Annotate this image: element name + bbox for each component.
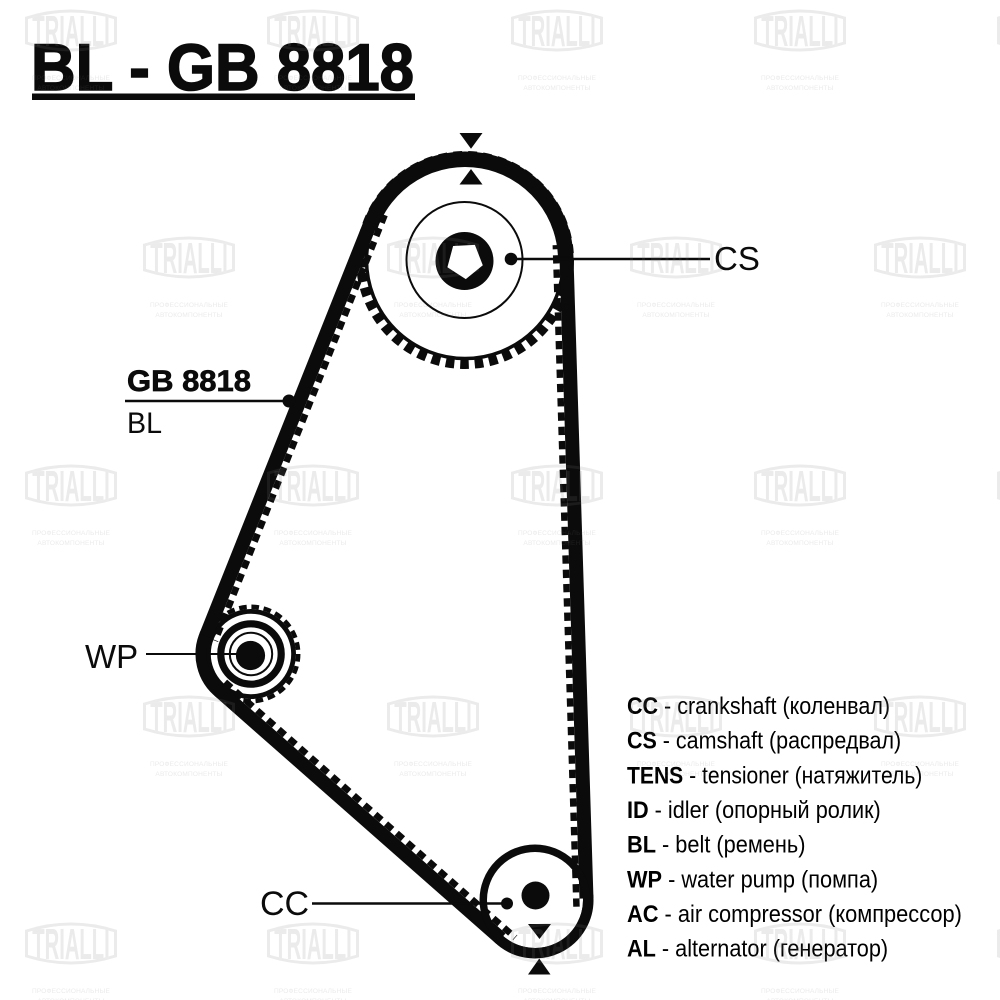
svg-text:ID - idler (опорный ролик): ID - idler (опорный ролик): [627, 796, 881, 824]
svg-text:WP: WP: [85, 638, 138, 675]
svg-text:BL - belt (ремень): BL - belt (ремень): [627, 830, 805, 857]
svg-text:CC: CC: [260, 885, 309, 923]
svg-text:BL: BL: [127, 407, 162, 440]
svg-text:WP - water pump (помпа): WP - water pump (помпа): [627, 865, 878, 892]
svg-text:GB 8818: GB 8818: [127, 365, 251, 398]
